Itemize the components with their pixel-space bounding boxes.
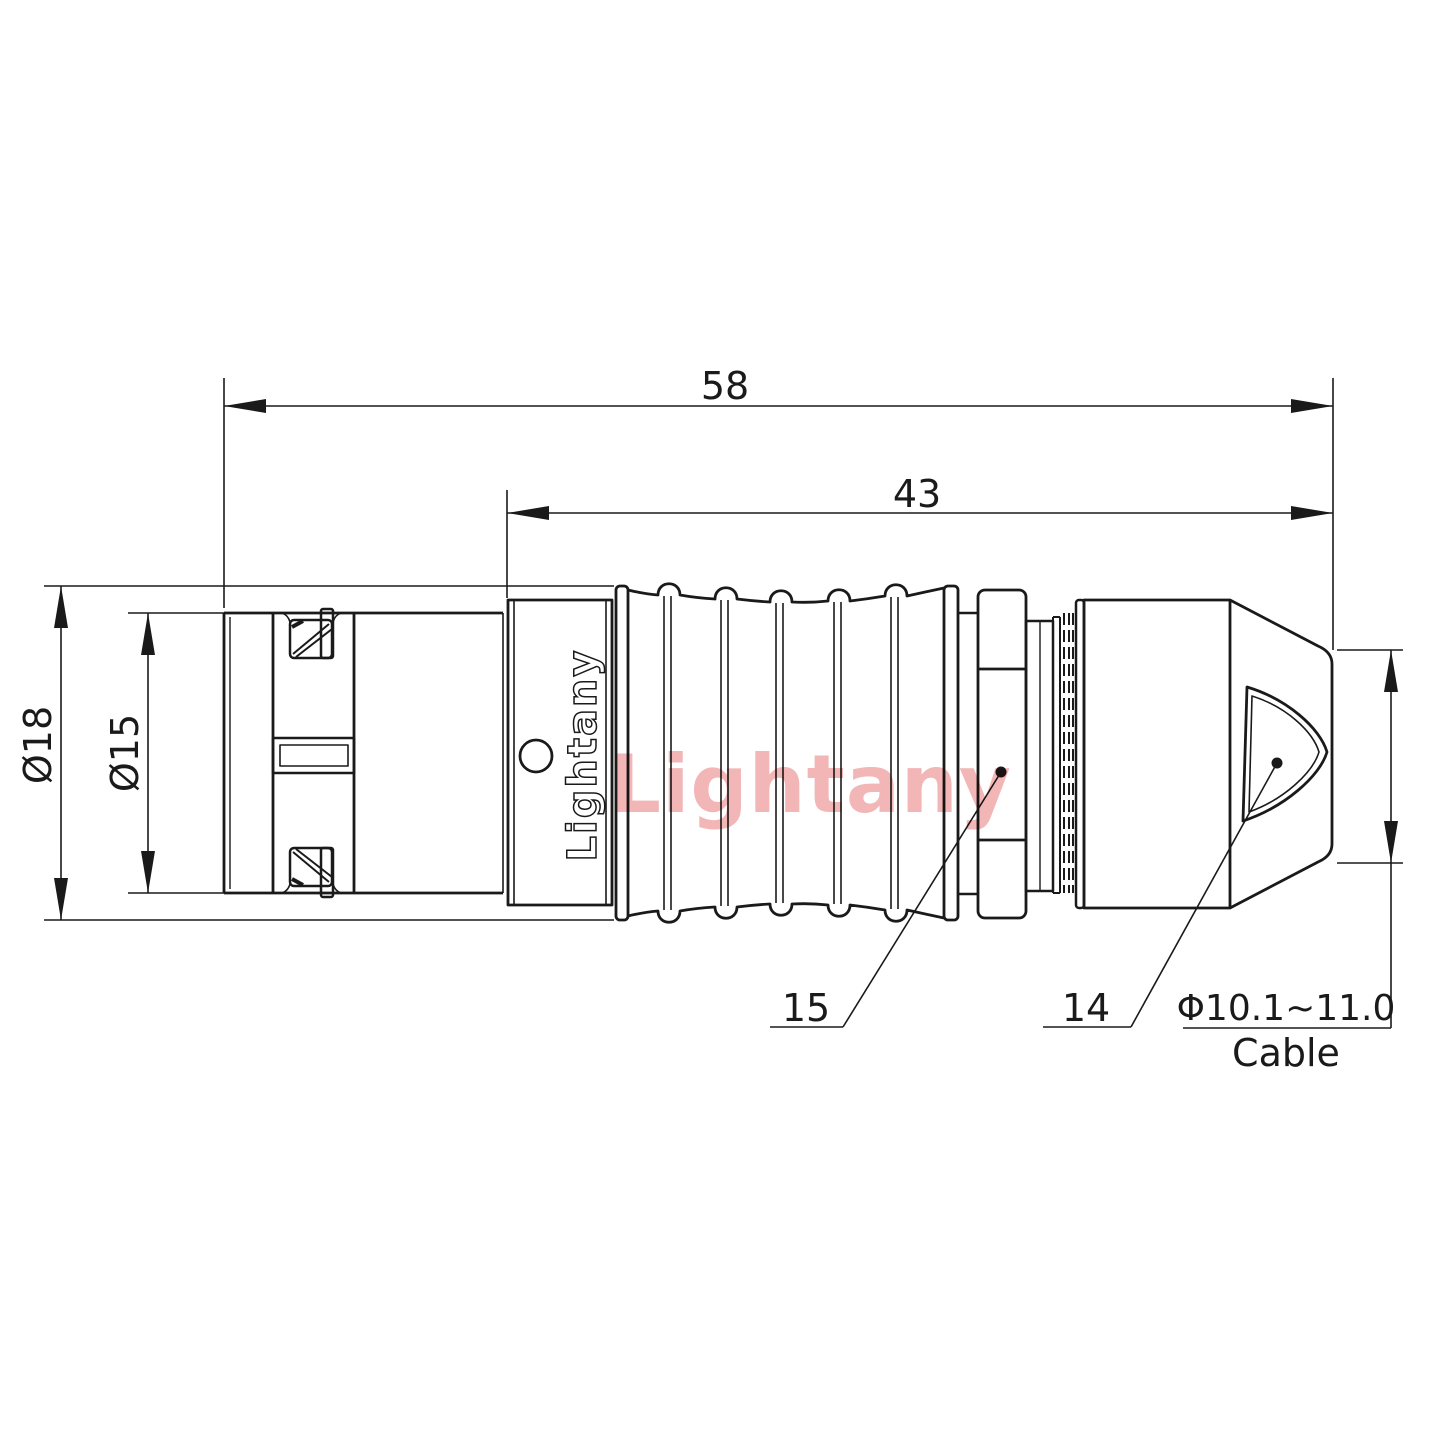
arrowhead-right [1291,506,1333,520]
clip-bend-mark [292,879,303,885]
panel-hole [520,740,552,772]
arrowhead-top [1384,650,1398,692]
strain-relief-boot [1076,600,1332,908]
outer-diameter-label: Ø18 [16,706,60,784]
arrowhead-bottom [54,878,68,920]
dim-58-label: 58 [701,364,749,408]
part-15-label: 15 [782,986,830,1030]
cable-dimension: Φ10.1~11.0 Cable [1177,650,1403,1075]
dimension-43: 43 [507,472,1333,598]
logo-panel: Lightany [508,600,612,905]
arrowhead-top [141,613,155,655]
inner-diameter-label: Ø15 [103,714,147,792]
watermark-text: Lightany [610,738,1012,831]
latch-sleeve [273,609,354,897]
logo-text: Lightany [560,649,606,862]
boot-body [1084,600,1230,908]
latch-clip-top [282,609,341,658]
clip-diagonal [296,629,332,657]
cable-range-label: Φ10.1~11.0 [1177,988,1396,1029]
dim-43-label: 43 [893,472,941,516]
clip-diagonal [293,852,329,882]
arrowhead-left [507,506,549,520]
clip-diagonal [293,624,329,654]
arrowhead-bottom [141,851,155,893]
arrowhead-left [224,399,266,413]
dimension-58: 58 [224,364,1333,650]
clip-bend-mark [292,621,303,627]
technical-drawing-page: 58 43 Ø18 Ø15 [0,0,1440,1440]
crimp-rings [1064,613,1073,893]
sleeve-window-inner [280,745,348,766]
grip-top-silhouette [628,584,944,603]
part-14-label: 14 [1062,986,1110,1030]
arrowhead-top [54,586,68,628]
dimension-inner-diameter: Ø15 [103,613,226,893]
cable-word-label: Cable [1232,1031,1340,1075]
clip-diagonal [296,849,332,877]
connector-technical-drawing: 58 43 Ø18 Ø15 [0,0,1440,1440]
arrowhead-right [1291,399,1333,413]
front-tube-outline [224,613,503,893]
grip-bottom-silhouette [628,904,944,923]
sleeve-window-outer [273,738,354,773]
arrowhead-bottom [1384,821,1398,863]
latch-clip-bottom [282,848,341,897]
